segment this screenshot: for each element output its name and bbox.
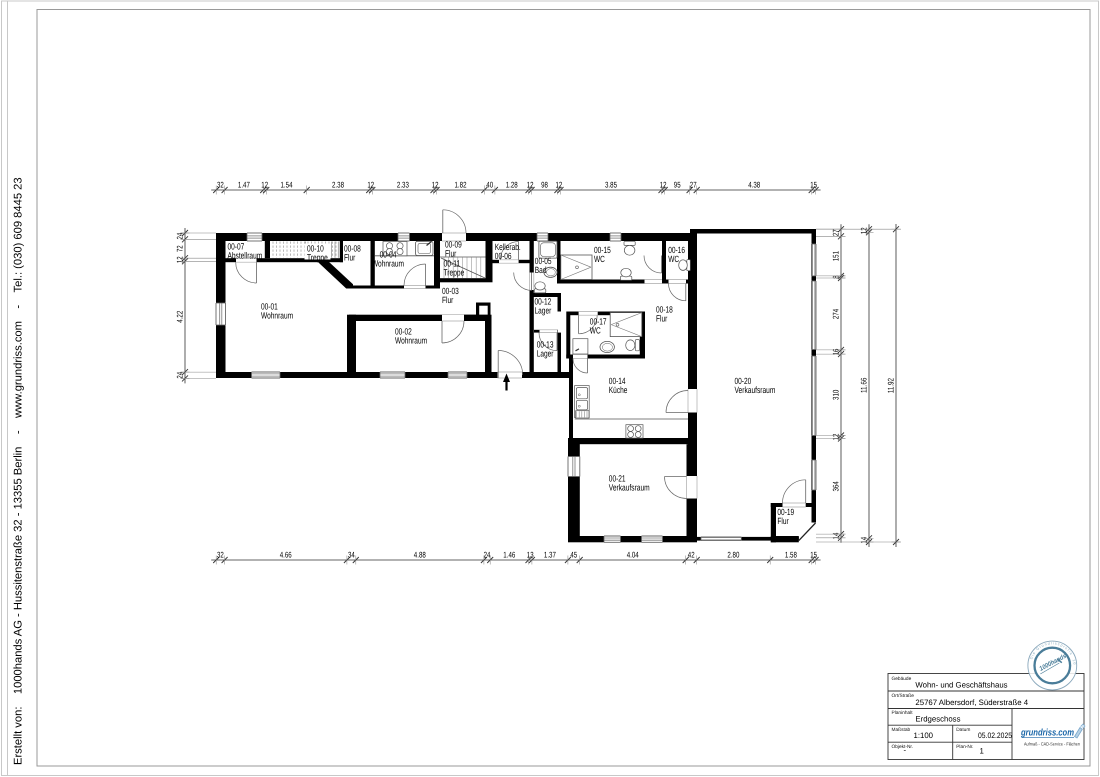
- svg-text:310: 310: [831, 389, 840, 400]
- svg-text:Flur: Flur: [777, 516, 788, 526]
- svg-text:12: 12: [556, 180, 563, 189]
- svg-text:4.88: 4.88: [414, 550, 426, 559]
- svg-text:34: 34: [348, 550, 355, 559]
- svg-text:Planinhalt: Planinhalt: [892, 710, 914, 716]
- svg-text:4.04: 4.04: [627, 550, 639, 559]
- svg-text:WC: WC: [668, 254, 679, 264]
- svg-text:27: 27: [831, 229, 840, 236]
- svg-text:1.54: 1.54: [281, 180, 293, 189]
- svg-text:Verkaufsraum: Verkaufsraum: [609, 483, 650, 493]
- svg-text:12: 12: [859, 227, 868, 234]
- svg-text:Aufmaß - CAD-Service - Flächen: Aufmaß - CAD-Service - Flächen: [1024, 742, 1080, 747]
- svg-text:1: 1: [980, 747, 984, 756]
- svg-text:95: 95: [674, 180, 681, 189]
- svg-text:Flur: Flur: [445, 249, 456, 259]
- svg-text:42: 42: [688, 550, 695, 559]
- svg-text:1:100: 1:100: [914, 731, 934, 740]
- svg-text:Maßstab: Maßstab: [892, 727, 911, 733]
- svg-text:Treppe: Treppe: [307, 253, 328, 263]
- svg-text:1.82: 1.82: [455, 180, 467, 189]
- svg-text:24: 24: [484, 550, 491, 559]
- svg-text:32: 32: [217, 550, 224, 559]
- svg-text:3.85: 3.85: [605, 180, 617, 189]
- svg-text:274: 274: [831, 309, 840, 320]
- svg-text:32: 32: [217, 180, 224, 189]
- svg-text:45: 45: [570, 550, 577, 559]
- svg-text:Flur: Flur: [442, 295, 453, 305]
- svg-text:2.33: 2.33: [397, 180, 409, 189]
- svg-text:Wohnraum: Wohnraum: [395, 336, 427, 346]
- svg-text:Treppe: Treppe: [444, 268, 465, 278]
- svg-text:Datum: Datum: [956, 727, 970, 733]
- svg-text:05.02.2025: 05.02.2025: [978, 731, 1013, 740]
- svg-text:24: 24: [175, 232, 184, 239]
- svg-text:1.46: 1.46: [503, 550, 515, 559]
- svg-text:12: 12: [432, 180, 439, 189]
- svg-text:Abstellraum: Abstellraum: [228, 251, 263, 261]
- svg-text:40: 40: [486, 180, 493, 189]
- svg-text:12: 12: [831, 433, 840, 440]
- svg-text:25767 Albersdorf, Süderstraße: 25767 Albersdorf, Süderstraße 4: [915, 698, 1028, 707]
- svg-text:Wohnraum: Wohnraum: [372, 259, 404, 269]
- svg-text:1.37: 1.37: [544, 550, 556, 559]
- svg-text:WC: WC: [594, 254, 605, 264]
- svg-text:Flur: Flur: [656, 314, 667, 324]
- svg-text:14: 14: [831, 532, 840, 539]
- svg-text:11.92: 11.92: [886, 378, 895, 394]
- svg-text:Plan-Nr.: Plan-Nr.: [956, 744, 973, 750]
- svg-text:12: 12: [175, 256, 184, 263]
- svg-text:72: 72: [175, 245, 184, 252]
- svg-text:12: 12: [261, 180, 268, 189]
- svg-text:Flur: Flur: [344, 253, 355, 263]
- svg-text:15: 15: [810, 180, 817, 189]
- svg-text:Lager: Lager: [537, 349, 554, 359]
- svg-text:Wohnraum: Wohnraum: [261, 311, 293, 321]
- svg-text:1.58: 1.58: [785, 550, 797, 559]
- svg-text:14: 14: [859, 536, 868, 543]
- svg-text:Küche: Küche: [609, 385, 628, 395]
- svg-text:Erdgeschoss: Erdgeschoss: [915, 714, 960, 723]
- svg-text:4.38: 4.38: [748, 180, 760, 189]
- svg-text:1.28: 1.28: [506, 180, 518, 189]
- svg-text:1.47: 1.47: [238, 180, 250, 189]
- svg-text:grundriss.com: grundriss.com: [1020, 728, 1074, 739]
- svg-text:Objekt-Nr.: Objekt-Nr.: [892, 744, 914, 750]
- svg-text:12: 12: [367, 180, 374, 189]
- svg-text:00-06: 00-06: [495, 251, 512, 261]
- svg-text:WC: WC: [590, 326, 601, 336]
- svg-text:12: 12: [527, 180, 534, 189]
- svg-text:11.66: 11.66: [859, 377, 868, 393]
- svg-text:27: 27: [690, 180, 697, 189]
- svg-text:Gebäude: Gebäude: [892, 676, 912, 682]
- svg-text:Erstellt von: 1000hands AG: Erstellt von: 1000hands AG - Hussitenstr…: [13, 177, 25, 765]
- svg-text:-: -: [904, 745, 907, 754]
- svg-text:Verkaufsraum: Verkaufsraum: [735, 385, 776, 395]
- svg-text:2.38: 2.38: [332, 180, 344, 189]
- svg-text:98: 98: [541, 180, 548, 189]
- svg-text:13: 13: [527, 550, 534, 559]
- svg-text:4.22: 4.22: [175, 310, 184, 322]
- svg-text:24: 24: [175, 371, 184, 378]
- svg-text:Bad: Bad: [535, 265, 547, 275]
- svg-text:2.80: 2.80: [727, 550, 739, 559]
- svg-text:Ort/Straße: Ort/Straße: [892, 693, 915, 699]
- svg-text:4.66: 4.66: [280, 550, 292, 559]
- svg-text:15: 15: [810, 550, 817, 559]
- svg-text:Lager: Lager: [535, 306, 552, 316]
- svg-text:12: 12: [660, 180, 667, 189]
- svg-text:Wohn- und Geschäftshaus: Wohn- und Geschäftshaus: [915, 681, 1007, 690]
- svg-text:151: 151: [831, 251, 840, 262]
- svg-text:364: 364: [831, 481, 840, 492]
